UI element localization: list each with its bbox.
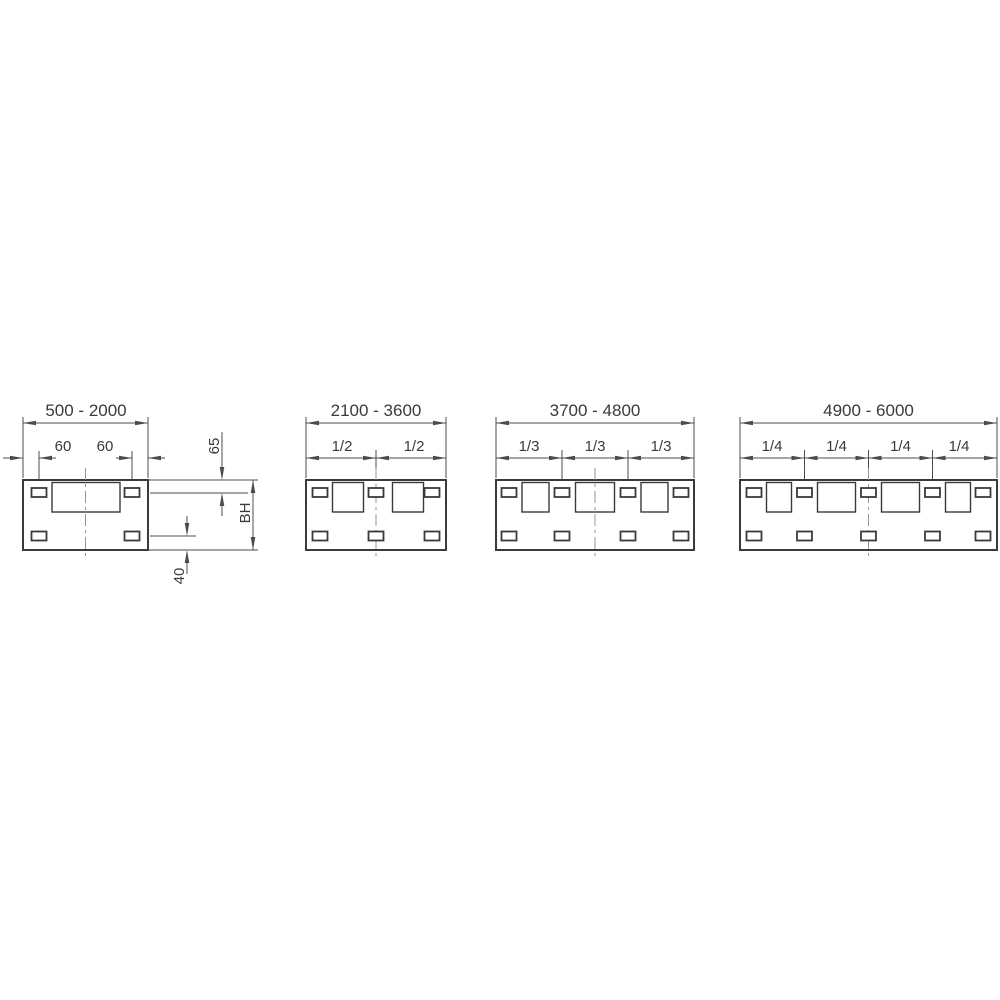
slot — [621, 532, 636, 541]
slot — [313, 488, 328, 497]
arrowhead-left — [148, 456, 161, 461]
slot — [425, 532, 440, 541]
slot — [125, 488, 140, 497]
slot — [747, 532, 762, 541]
arrowhead-right — [615, 456, 628, 461]
dim-label-fraction: 1/3 — [519, 438, 540, 455]
slot — [861, 532, 876, 541]
slot — [797, 532, 812, 541]
dim-label-fraction: 1/4 — [949, 438, 970, 455]
cutout — [522, 483, 549, 513]
dim-label-top-inset: 65 — [206, 438, 223, 455]
slot — [976, 488, 991, 497]
dim-label-range: 4900 - 6000 — [823, 401, 914, 420]
cutout — [818, 483, 856, 513]
cutout — [882, 483, 920, 513]
cutout — [333, 483, 364, 513]
technical-drawing: 500 - 2000 60 60 65 BH 40 — [0, 0, 1000, 1000]
dim-label-bottom-inset: 40 — [171, 568, 188, 585]
slot — [369, 532, 384, 541]
arrowhead-left — [306, 456, 319, 461]
slot — [925, 532, 940, 541]
arrowhead-right — [984, 456, 997, 461]
arrowhead-right — [10, 456, 23, 461]
arrowhead-left — [805, 456, 818, 461]
dim-label-range: 3700 - 4800 — [550, 401, 641, 420]
arrowhead-up — [220, 493, 225, 506]
dim-label-body-height: BH — [237, 503, 254, 524]
arrowhead-right — [681, 421, 694, 426]
arrowhead-left — [496, 456, 509, 461]
arrowhead-left — [376, 456, 389, 461]
panel2-part — [306, 468, 446, 558]
slot — [32, 488, 47, 497]
arrowhead-right — [920, 456, 933, 461]
slot — [674, 532, 689, 541]
slot — [747, 488, 762, 497]
arrowhead-right — [433, 456, 446, 461]
arrowhead-left — [496, 421, 509, 426]
arrowhead-right — [792, 456, 805, 461]
arrowhead-left — [562, 456, 575, 461]
drawing-canvas: 500 - 2000 60 60 65 BH 40 — [0, 0, 1000, 1000]
arrowhead-left — [740, 421, 753, 426]
panel1-part — [23, 468, 148, 558]
arrowhead-right — [856, 456, 869, 461]
slot — [925, 488, 940, 497]
arrowhead-left — [628, 456, 641, 461]
dim-label-fraction: 1/2 — [404, 438, 425, 455]
slot — [313, 532, 328, 541]
cutout — [946, 483, 971, 513]
arrowhead-right — [119, 456, 132, 461]
panel4-part — [740, 468, 997, 558]
slot — [797, 488, 812, 497]
slot — [976, 532, 991, 541]
slot — [125, 532, 140, 541]
arrowhead-up — [185, 550, 190, 563]
dim-label-offset-left: 60 — [55, 438, 72, 455]
arrowhead-left — [933, 456, 946, 461]
arrowhead-right — [984, 421, 997, 426]
cutout — [767, 483, 792, 513]
arrowhead-right — [433, 421, 446, 426]
slot — [369, 488, 384, 497]
arrowhead-right — [363, 456, 376, 461]
slot — [674, 488, 689, 497]
arrowhead-right — [135, 421, 148, 426]
cutout — [393, 483, 424, 513]
dim-label-range: 500 - 2000 — [45, 401, 126, 420]
dim-label-fraction: 1/2 — [332, 438, 353, 455]
dim-label-fraction: 1/3 — [651, 438, 672, 455]
arrowhead-right — [681, 456, 694, 461]
dim-label-fraction: 1/4 — [826, 438, 847, 455]
dim-label-fraction: 1/4 — [762, 438, 783, 455]
slot — [32, 532, 47, 541]
slot — [425, 488, 440, 497]
panel3-part — [496, 468, 694, 558]
arrowhead-left — [306, 421, 319, 426]
arrowhead-up — [251, 480, 256, 493]
cutout — [641, 483, 668, 513]
arrowhead-down — [185, 523, 190, 536]
slot — [555, 488, 570, 497]
arrowhead-left — [740, 456, 753, 461]
slot — [502, 488, 517, 497]
slot — [502, 532, 517, 541]
slot — [861, 488, 876, 497]
arrowhead-right — [549, 456, 562, 461]
arrowhead-left — [23, 421, 36, 426]
arrowhead-left — [869, 456, 882, 461]
dim-label-fraction: 1/3 — [585, 438, 606, 455]
dim-label-offset-right: 60 — [97, 438, 114, 455]
dim-label-range: 2100 - 3600 — [331, 401, 422, 420]
slot — [555, 532, 570, 541]
arrowhead-down — [220, 467, 225, 480]
arrowhead-down — [251, 537, 256, 550]
arrowhead-left — [39, 456, 52, 461]
dim-label-fraction: 1/4 — [890, 438, 911, 455]
slot — [621, 488, 636, 497]
